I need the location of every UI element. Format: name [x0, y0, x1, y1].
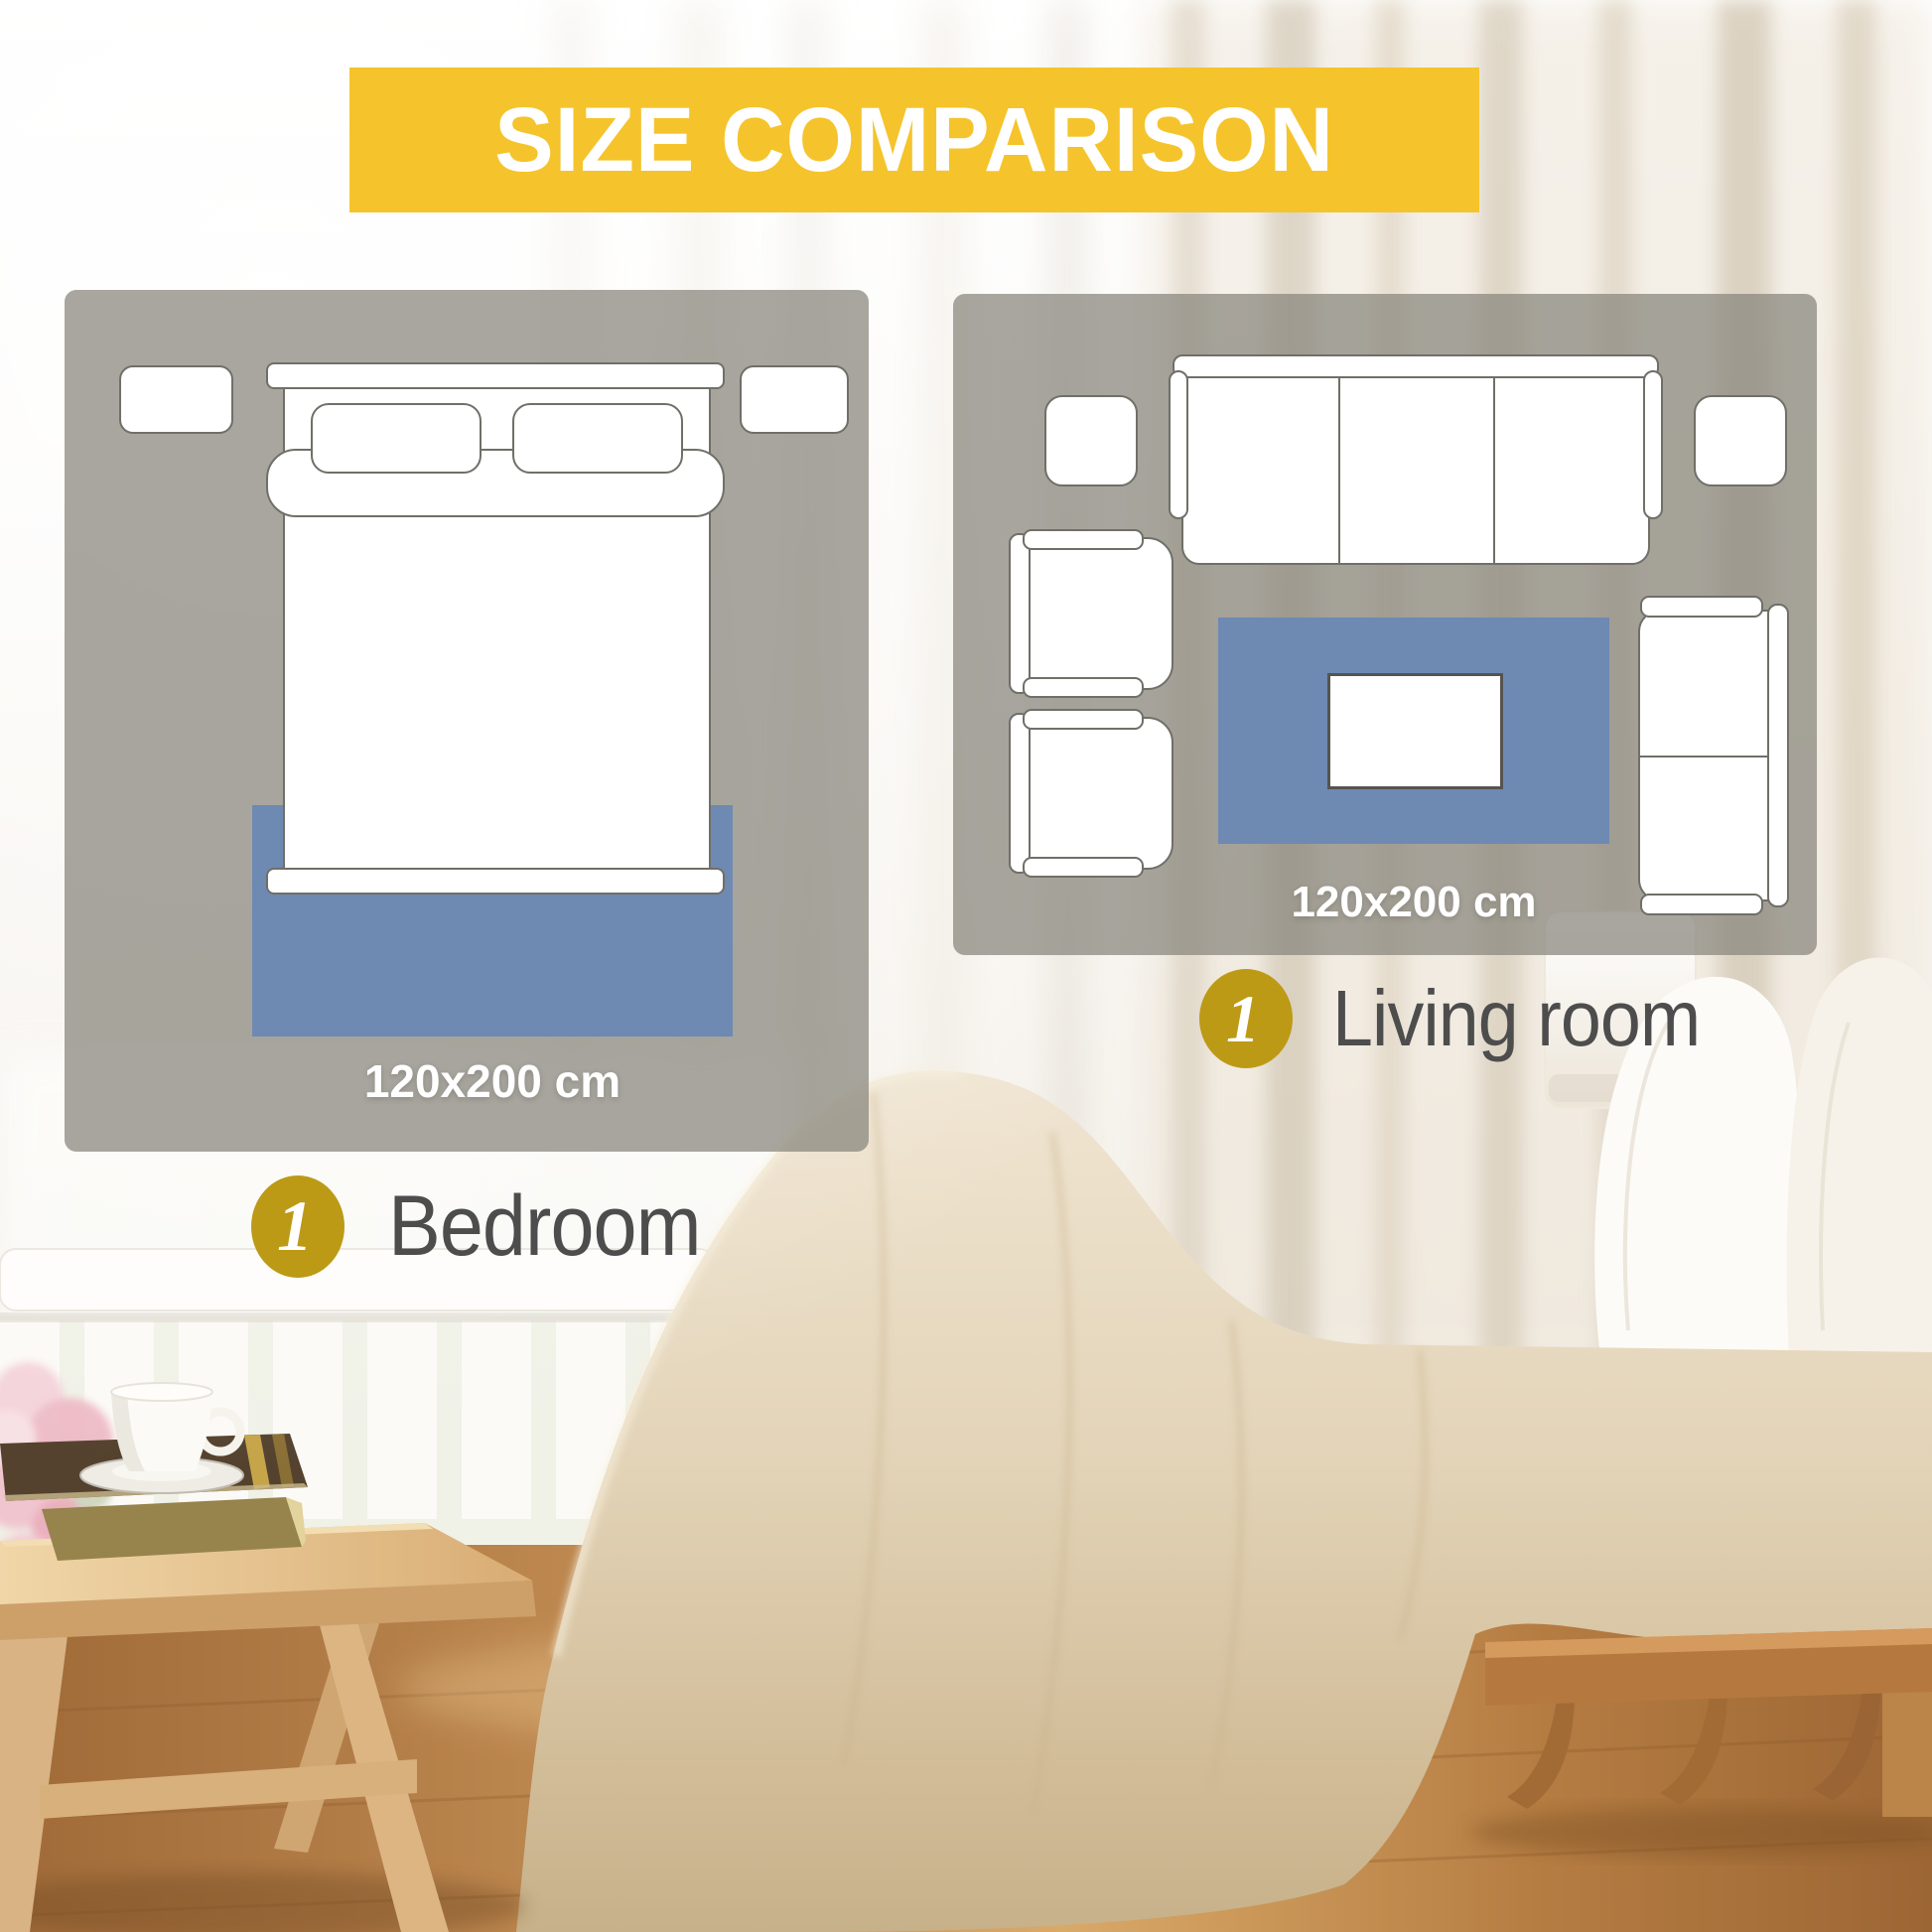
living-room-diagram-panel: 120x200 cm: [953, 294, 1817, 955]
sofa-cushion-divider: [1493, 372, 1495, 563]
page-title: SIZE COMPARISON: [494, 88, 1334, 193]
pillow-icon: [512, 403, 683, 474]
armchair-icon: [1009, 709, 1173, 878]
armchair-backrest: [1009, 713, 1031, 874]
armchair-seat: [1025, 717, 1173, 870]
bed-headboard: [266, 362, 725, 389]
sofa-seat: [1181, 370, 1650, 565]
size-comparison-infographic: SIZE COMPARISON 120x200 cm: [0, 0, 1932, 1932]
bedroom-caption: 1 Bedroom: [251, 1175, 728, 1278]
armchair-armrest: [1023, 709, 1144, 730]
sofa-armrest: [1169, 370, 1188, 519]
armchair-armrest: [1640, 894, 1763, 915]
armchair-icon: [1009, 529, 1173, 698]
living-room-rug-size-label: 120x200 cm: [1218, 878, 1609, 927]
pillow-icon: [311, 403, 482, 474]
armchair-armrest: [1023, 529, 1144, 550]
armchair-seat: [1025, 537, 1173, 690]
title-banner: SIZE COMPARISON: [349, 68, 1479, 212]
sofa-icon: [1169, 354, 1663, 565]
side-table-icon: [1694, 395, 1787, 486]
bedroom-diagram-panel: 120x200 cm: [65, 290, 869, 1152]
sofa-backrest: [1173, 354, 1659, 378]
nightstand-icon: [119, 365, 233, 434]
room-name-label: Bedroom: [388, 1177, 701, 1276]
nightstand-icon: [740, 365, 849, 434]
sofa-armrest: [1643, 370, 1663, 519]
number-badge: 1: [251, 1175, 345, 1278]
armchair-armrest: [1023, 857, 1144, 878]
sofa-cushion-divider: [1338, 372, 1340, 563]
armchair-backrest: [1009, 533, 1031, 694]
armchair-armrest: [1023, 677, 1144, 698]
armchair-seat: [1638, 610, 1775, 901]
side-table-icon: [1044, 395, 1138, 486]
number-badge: 1: [1199, 969, 1293, 1068]
room-name-label: Living room: [1332, 973, 1700, 1064]
bed-footboard: [266, 868, 725, 895]
armchair-cushion-divider: [1640, 756, 1773, 758]
armchair-backrest: [1767, 604, 1789, 907]
living-room-caption: 1 Living room: [1199, 969, 1732, 1068]
bedroom-rug-size-label: 120x200 cm: [252, 1054, 733, 1108]
armchair-icon: [1638, 596, 1789, 915]
armchair-armrest: [1640, 596, 1763, 618]
coffee-table-icon: [1327, 673, 1503, 789]
